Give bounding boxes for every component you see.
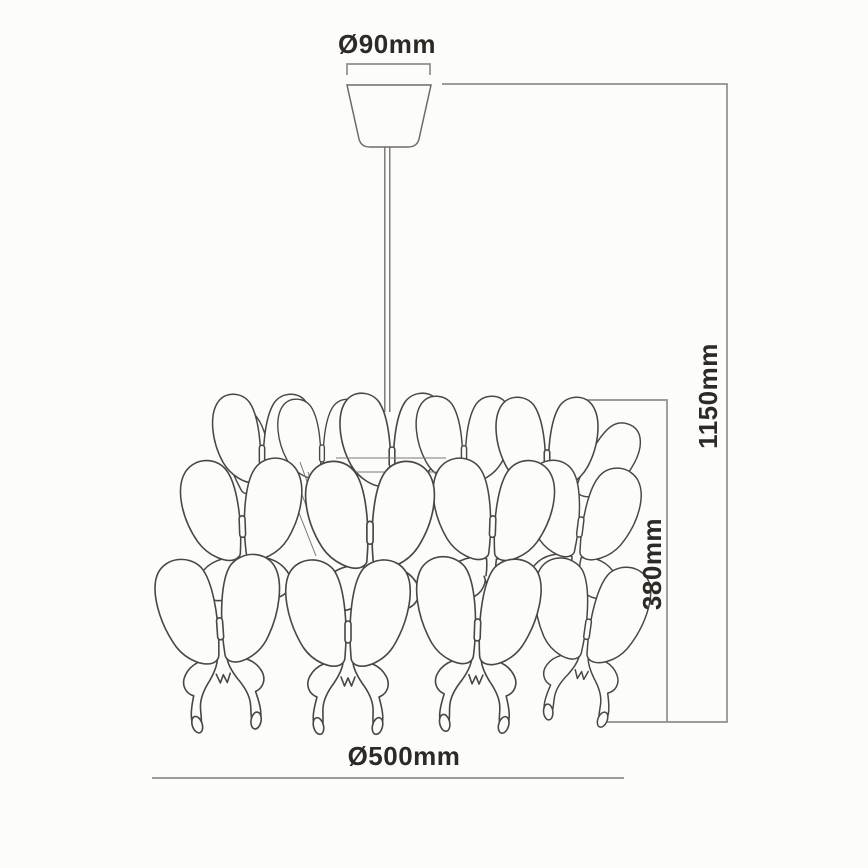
canopy-width-bracket <box>347 64 430 75</box>
canopy-diameter-label: Ø90mm <box>338 31 436 57</box>
ceiling-canopy <box>347 85 431 147</box>
shade-height-label: 380mm <box>639 518 665 610</box>
overall-height-label: 1150mm <box>695 343 721 449</box>
pendant-cord <box>385 147 390 412</box>
dimension-drawing-page: { "diagram": { "subject": "butterfly-pen… <box>0 0 868 868</box>
shade-row-bottom <box>153 553 654 737</box>
lamp-line-art <box>0 0 868 868</box>
shade-diameter-label: Ø500mm <box>348 743 461 769</box>
butterfly-shade <box>153 393 654 736</box>
